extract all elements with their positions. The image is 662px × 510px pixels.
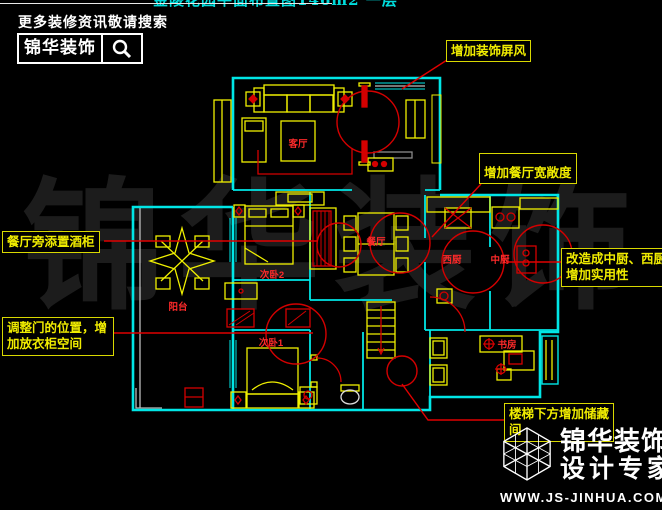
leader-lines [104, 60, 561, 420]
room-label-study: 书房 [497, 339, 516, 351]
note-add-wine-cabinet: 餐厅旁添置酒柜 [2, 231, 100, 253]
footer-brand-name: 锦华装饰 [560, 429, 662, 456]
footer-tagline: 设计专家 [560, 456, 662, 482]
magnifier-icon [103, 35, 141, 62]
brand-search-box: 锦华装饰 [17, 33, 143, 64]
room-label-bedroom2: 次卧2 [260, 269, 284, 281]
note-adjust-door-wardrobe: 调整门的位置，增 加放衣柜空间 [2, 317, 114, 356]
drawing-title-text: 金陵花园平面布置图146m2 一层 [153, 0, 423, 8]
brand-footer: 锦华装饰 设计专家 WWW.JS-JINHUA.COM [500, 425, 658, 504]
top-divider-line [0, 3, 332, 4]
room-label-bedroom1: 次卧1 [259, 337, 284, 349]
highlight-circles [266, 91, 572, 386]
room-label-living: 客厅 [287, 138, 308, 150]
note-convert-kitchens: 改造成中厨、西厨 增加实用性 [561, 248, 662, 287]
clipped-drawing-title: 金陵花园平面布置图146m2 一层 [153, 0, 423, 11]
room-labels: 客厅 餐厅 阳台 次卧2 次卧1 西厨 中厨 书房 [168, 138, 516, 351]
note-add-decorative-screen: 增加装饰屏风 [446, 40, 531, 62]
brand-name: 锦华装饰 [19, 35, 103, 62]
cube-logo-icon [500, 425, 554, 486]
room-label-dining: 餐厅 [365, 236, 386, 248]
cad-floorplan-page: { "header": { "search_hint": "更多装修资讯敬请搜索… [0, 0, 662, 510]
toilet [341, 390, 359, 404]
room-label-balcony: 阳台 [168, 301, 188, 313]
search-hint-text: 更多装修资讯敬请搜索 [18, 15, 168, 32]
wall-outline [133, 78, 558, 410]
note-widen-dining-room: 增加餐厅宽敞度 [479, 153, 577, 184]
footer-website-url: WWW.JS-JINHUA.COM [500, 491, 658, 504]
room-label-mid-kitchen: 中厨 [490, 254, 510, 266]
furniture-layer [150, 83, 558, 408]
room-label-west-kitchen: 西厨 [442, 255, 462, 266]
